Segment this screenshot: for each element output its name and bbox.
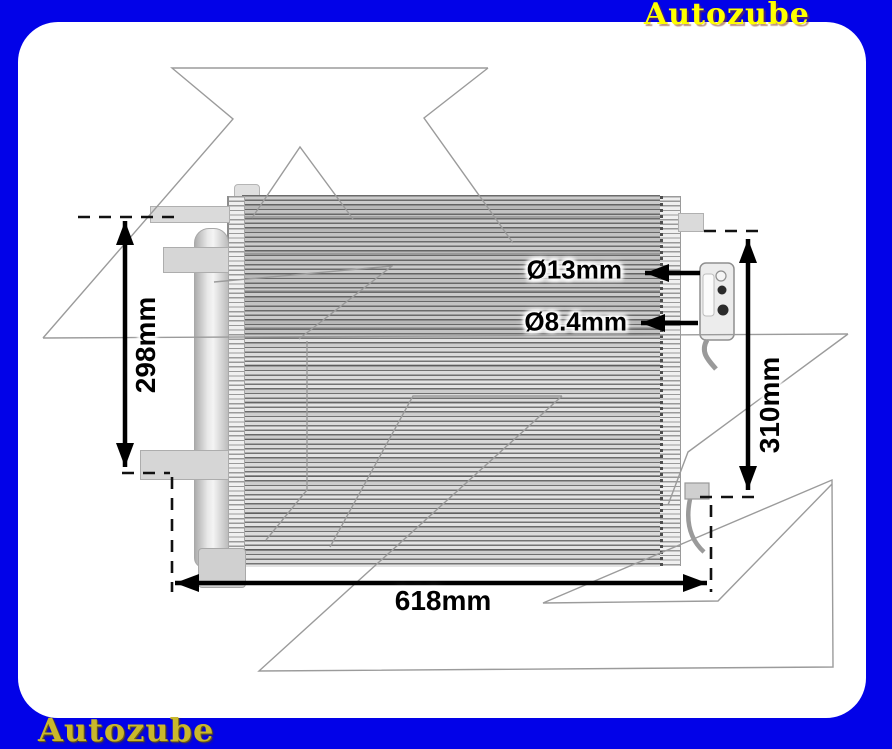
label-port-small-diameter: Ø8.4mm xyxy=(524,307,627,338)
product-image-page: { "brand": { "top_label": "Autozube", "b… xyxy=(0,0,892,742)
right-bracket-rivet xyxy=(716,271,726,281)
port-hole-large xyxy=(718,286,727,295)
watermark-shape xyxy=(424,68,513,243)
dimension-arrows xyxy=(125,221,748,583)
label-port-large-diameter: Ø13mm xyxy=(527,255,622,286)
label-left-height: 298mm xyxy=(130,297,162,394)
right-lower-hook xyxy=(688,499,704,552)
watermark-outlines xyxy=(43,68,848,671)
watermark-shape xyxy=(214,266,392,339)
watermark-shape xyxy=(266,341,307,540)
right-bracket-slot xyxy=(703,274,714,316)
label-bottom-width: 618mm xyxy=(395,585,492,617)
right-bracket-assembly xyxy=(685,263,734,552)
watermark-shape xyxy=(43,68,488,338)
watermark-shape xyxy=(330,396,562,547)
right-bracket-strap xyxy=(704,340,716,369)
port-hole-small xyxy=(718,305,729,316)
watermark-shape xyxy=(252,147,353,219)
label-right-height: 310mm xyxy=(754,357,786,454)
